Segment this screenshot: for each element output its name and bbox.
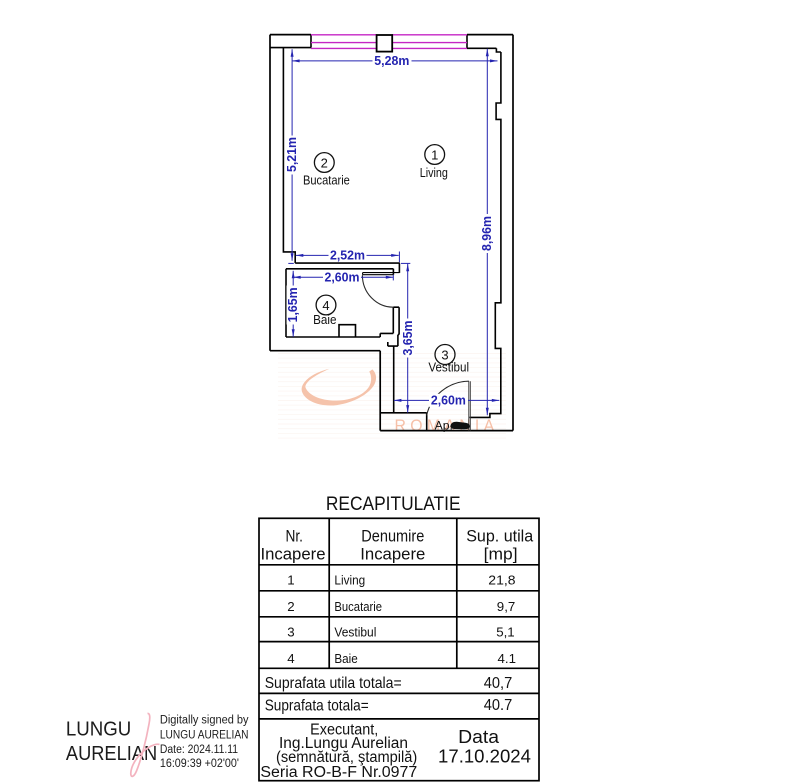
svg-text:Ap.: Ap.	[435, 418, 453, 432]
svg-text:4: 4	[287, 651, 294, 666]
svg-text:Vestibul: Vestibul	[334, 625, 376, 640]
svg-text:Incapere: Incapere	[260, 544, 325, 563]
svg-text:Vestibul: Vestibul	[428, 361, 469, 375]
svg-text:2,60m: 2,60m	[325, 271, 360, 285]
svg-text:Suprafata utila totala=: Suprafata utila totala=	[265, 675, 402, 692]
svg-text:RECAPITULATIE: RECAPITULATIE	[326, 494, 461, 515]
svg-text:Incapere: Incapere	[360, 544, 425, 563]
svg-text:Bucatarie: Bucatarie	[334, 599, 382, 614]
svg-text:Digitally signed by: Digitally signed by	[160, 715, 249, 727]
svg-text:Seria RO-B-F Nr.0977: Seria RO-B-F Nr.0977	[260, 764, 417, 781]
svg-text:[mp]: [mp]	[484, 544, 518, 563]
svg-text:17.10.2024: 17.10.2024	[438, 745, 531, 766]
svg-text:Living: Living	[420, 166, 448, 180]
svg-text:21,8: 21,8	[488, 573, 515, 588]
svg-text:AURELIAN: AURELIAN	[66, 742, 157, 765]
svg-text:1: 1	[287, 573, 294, 588]
svg-text:Date: 2024.11.11: Date: 2024.11.11	[160, 744, 238, 756]
svg-text:LUNGU: LUNGU	[66, 717, 131, 740]
svg-text:4.1: 4.1	[498, 651, 517, 666]
svg-text:5,28m: 5,28m	[374, 54, 409, 68]
svg-text:2: 2	[321, 155, 328, 170]
svg-text:3,65m: 3,65m	[401, 321, 415, 356]
svg-text:1,65m: 1,65m	[286, 287, 300, 322]
svg-text:Baie: Baie	[334, 651, 357, 666]
svg-text:8,96m: 8,96m	[480, 216, 494, 251]
svg-text:Sup. utila: Sup. utila	[466, 527, 534, 546]
svg-text:40.7: 40.7	[484, 697, 513, 714]
svg-text:Data: Data	[458, 726, 500, 747]
svg-text:Bucatarie: Bucatarie	[303, 174, 350, 188]
svg-text:5,21m: 5,21m	[285, 137, 299, 172]
svg-text:LUNGU AURELIAN: LUNGU AURELIAN	[160, 729, 249, 741]
svg-text:2: 2	[287, 599, 294, 614]
svg-text:3: 3	[287, 625, 294, 640]
svg-text:40,7: 40,7	[484, 675, 513, 692]
svg-text:Nr.: Nr.	[285, 527, 303, 546]
svg-text:Baie: Baie	[313, 313, 336, 327]
svg-text:Denumire: Denumire	[361, 527, 424, 546]
svg-text:9,7: 9,7	[497, 599, 516, 614]
svg-text:5,1: 5,1	[496, 625, 515, 640]
svg-text:4: 4	[322, 298, 329, 313]
svg-text:2,52m: 2,52m	[330, 249, 365, 263]
svg-text:Living: Living	[334, 573, 365, 588]
svg-text:Suprafata totala=: Suprafata totala=	[265, 697, 369, 714]
svg-text:1: 1	[431, 147, 438, 162]
svg-text:2,60m: 2,60m	[431, 394, 466, 408]
svg-text:16:09:39 +02'00': 16:09:39 +02'00'	[160, 758, 239, 770]
